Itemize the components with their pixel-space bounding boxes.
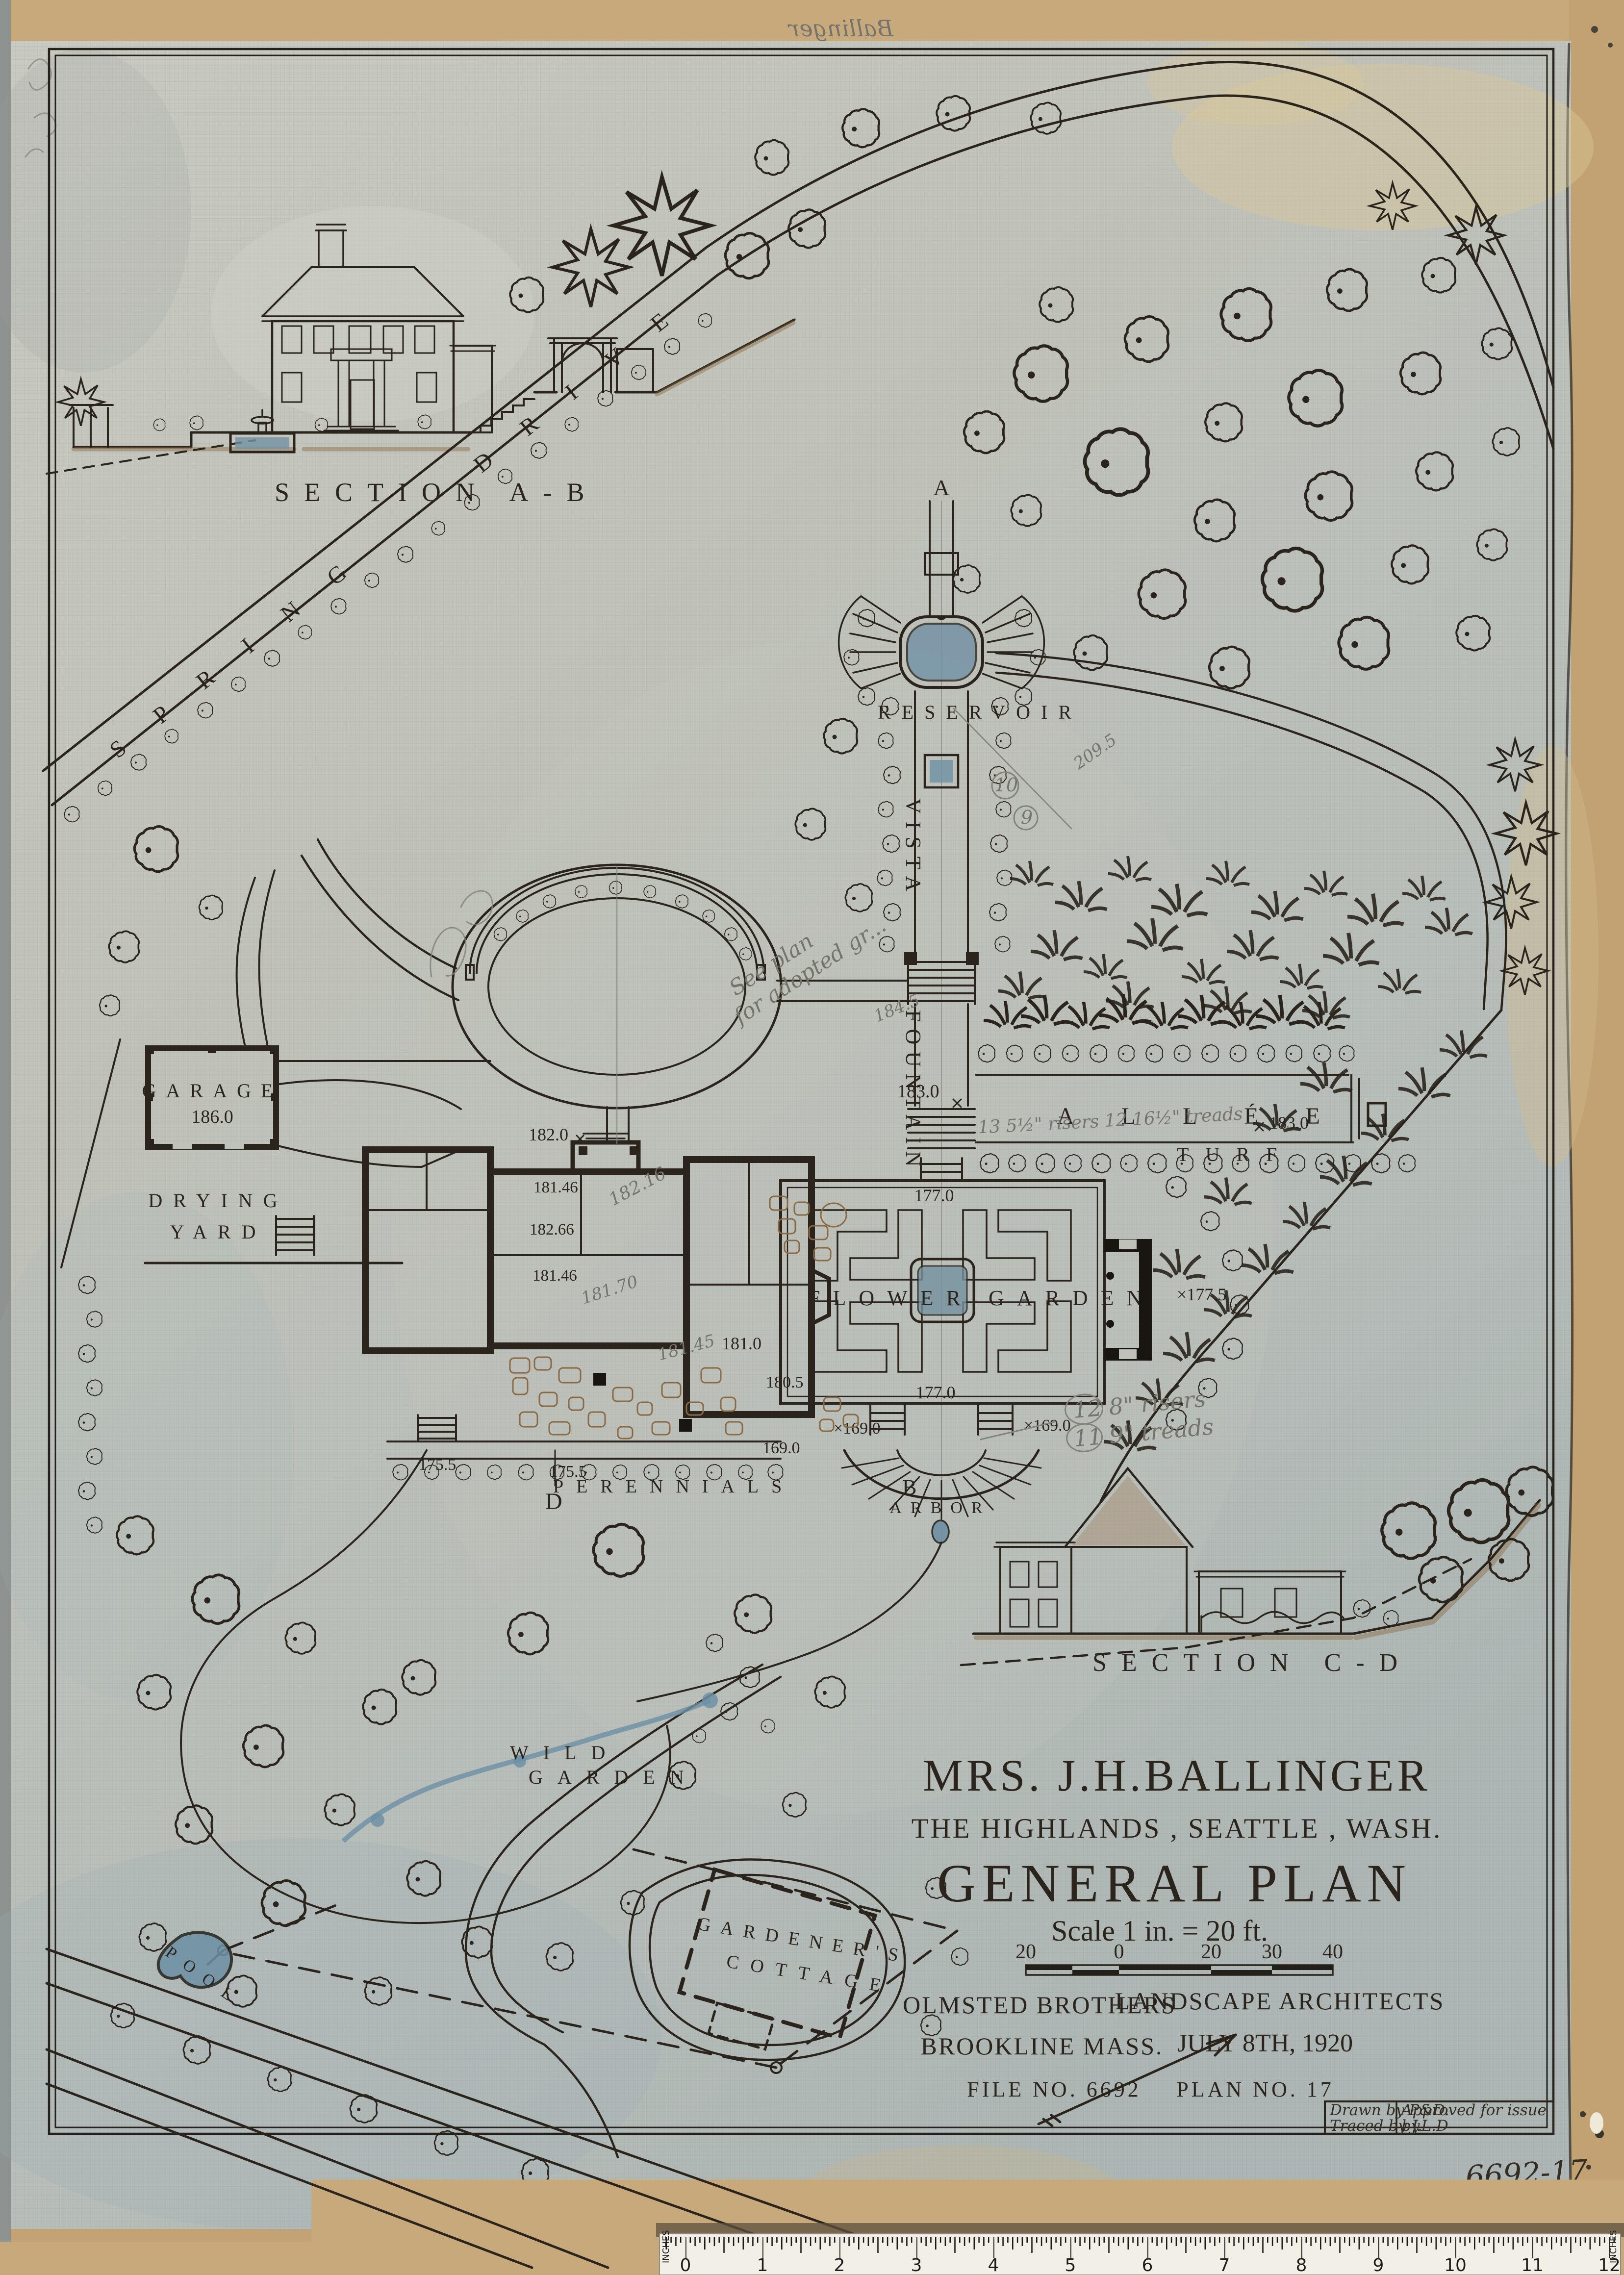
- verso-handwriting: Ballinger: [787, 15, 894, 42]
- ruler-mark-6: 6: [1142, 2255, 1153, 2275]
- section-marker-b: B: [902, 1475, 916, 1499]
- vista-label: VISTA: [901, 798, 925, 899]
- firm-profession: LANDSCAPE ARCHITECTS: [1115, 1987, 1445, 2015]
- ruler-mark-10: 10: [1444, 2255, 1467, 2275]
- scale-bar-20l: 20: [1015, 1941, 1036, 1963]
- court-elevation: 182.0: [529, 1125, 568, 1144]
- ruler-mark-5: 5: [1065, 2255, 1076, 2275]
- ruler-mark-3: 3: [911, 2255, 922, 2275]
- yard-label: YARD: [170, 1221, 267, 1243]
- stamp-approved: Approved for issue: [1400, 2101, 1547, 2119]
- ruler-mark-7: 7: [1219, 2255, 1230, 2275]
- title-scale-note: Scale 1 in. = 20 ft.: [1051, 1915, 1268, 1947]
- ruler-units-left: INCHES: [661, 2230, 671, 2263]
- perennials-label: PERENNIALS: [553, 1476, 794, 1497]
- section-marker-d: D: [545, 1489, 562, 1515]
- house-elevation-5: 180.5: [766, 1373, 804, 1391]
- scale-bar-30: 30: [1262, 1941, 1282, 1963]
- fg-elevation-top: 177.0: [914, 1186, 954, 1205]
- pencil-circled-10: 10: [994, 774, 1018, 796]
- title-location: THE HIGHLANDS , SEATTLE , WASH.: [912, 1813, 1442, 1844]
- ruler-mark-11: 11: [1521, 2255, 1544, 2275]
- garage-elevation: 186.0: [191, 1107, 233, 1127]
- garden-label: GARDEN: [989, 1286, 1155, 1310]
- scale-bar-20r: 20: [1201, 1941, 1221, 1963]
- stamp-by: by.: [1401, 2117, 1422, 2135]
- reservoir-label: RESERVOIR: [878, 701, 1082, 723]
- title-client: MRS. J.H.BALLINGER: [923, 1750, 1431, 1800]
- terrace-elevation-b: ×169.0: [834, 1419, 881, 1438]
- house-elevation-4: 181.0: [722, 1334, 761, 1353]
- ruler-mark-4: 4: [988, 2255, 999, 2275]
- flower-label: FLOWER: [808, 1286, 973, 1310]
- section-ab-label: SECTION A-B: [275, 478, 599, 507]
- ruler-mark-0: 0: [680, 2255, 691, 2275]
- title-main: GENERAL PLAN: [937, 1853, 1412, 1913]
- wild-label: WILD: [510, 1742, 620, 1764]
- scale-bar-40: 40: [1322, 1941, 1343, 1963]
- drying-label: DRYING: [148, 1189, 288, 1212]
- ruler-mark-2: 2: [834, 2255, 845, 2275]
- plan-number: PLAN NO. 17: [1176, 2077, 1334, 2101]
- photo-ruler: 0 1 2 3 4 5 6 7 8 9 10 11 12 INCHES INCH…: [656, 2223, 1624, 2275]
- fg-elevation-right: ×177.5: [1177, 1285, 1226, 1304]
- house-elevation-1: 181.46: [533, 1179, 578, 1196]
- stamp-traced-by: Traced by J.L.D: [1330, 2117, 1448, 2135]
- west-terrace-elevation: 175.5: [419, 1456, 457, 1474]
- pencil-circled-9: 9: [1021, 807, 1033, 828]
- ruler-mark-1: 1: [757, 2255, 768, 2275]
- garage-label: GARAGE: [142, 1080, 283, 1102]
- sheet-number: 6692-17: [1465, 2153, 1589, 2194]
- scale-bar-0: 0: [1114, 1941, 1124, 1963]
- ruler-mark-8: 8: [1296, 2255, 1307, 2275]
- scanned-plan-sheet: Ballinger: [0, 0, 1624, 2275]
- house-elevation-2: 182.66: [530, 1221, 574, 1239]
- firm-location: BROOKLINE MASS.: [920, 2032, 1163, 2060]
- turf-label: TURF: [1177, 1143, 1294, 1165]
- fg-elevation-bottom: 177.0: [916, 1383, 956, 1402]
- plan-date: JULY 8TH, 1920: [1177, 2029, 1353, 2057]
- wild-garden-label: GARDEN: [529, 1766, 699, 1788]
- terrace-elevation-c: ×169.0: [1024, 1416, 1071, 1435]
- axis-elevation: 183.0: [897, 1081, 939, 1102]
- ruler-units-right: INCHES: [1608, 2230, 1619, 2263]
- section-cd-label: SECTION C-D: [1092, 1649, 1412, 1677]
- arbor-label: ARBOR: [889, 1499, 991, 1517]
- plan-drawing: Ballinger: [0, 0, 1624, 2275]
- ruler-mark-9: 9: [1373, 2255, 1384, 2275]
- house-elevation-3: 181.46: [533, 1267, 577, 1285]
- section-marker-a: A: [933, 475, 949, 500]
